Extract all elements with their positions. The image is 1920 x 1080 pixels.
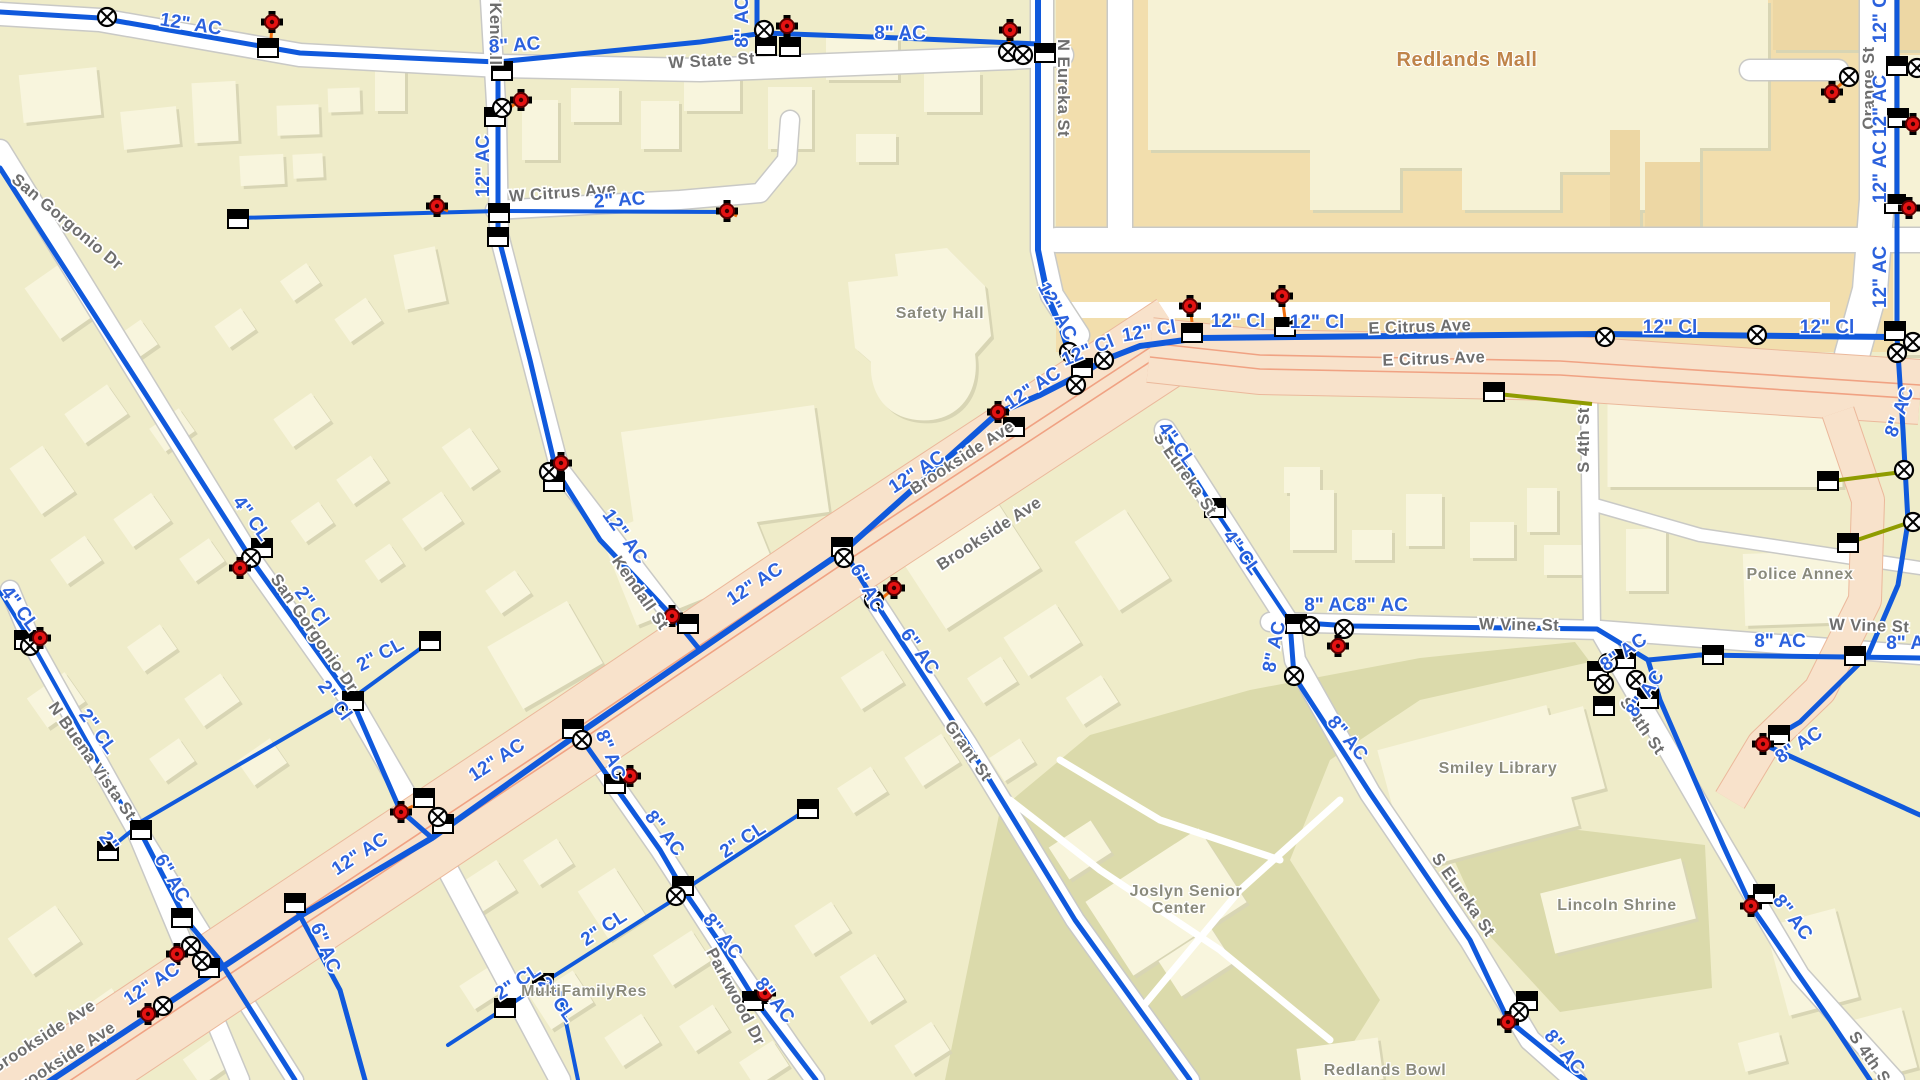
building-footprint — [1406, 494, 1442, 546]
valve-icon[interactable] — [835, 549, 853, 567]
valve-icon[interactable] — [1595, 675, 1613, 693]
building-footprint — [375, 69, 405, 111]
building-footprint — [1626, 529, 1666, 591]
building-footprint — [641, 101, 679, 149]
valve-icon[interactable] — [573, 731, 591, 749]
valve-icon[interactable] — [755, 21, 773, 39]
valve-icon[interactable] — [1888, 344, 1906, 362]
meter-icon[interactable] — [1818, 472, 1838, 490]
place-label: Smiley Library — [1439, 760, 1558, 777]
building-footprint — [19, 67, 102, 123]
meter-icon[interactable] — [414, 789, 434, 807]
pipe-size-label: 12" Cl — [1290, 312, 1344, 333]
place-label: Police Annex — [1746, 566, 1853, 583]
building-footprint — [120, 106, 180, 150]
valve-icon[interactable] — [1904, 333, 1920, 351]
valve-icon[interactable] — [1748, 326, 1766, 344]
pipe-size-label: 12" Cl — [1211, 311, 1265, 332]
meter-icon[interactable] — [1182, 324, 1202, 342]
valve-icon[interactable] — [193, 952, 211, 970]
gis-map-viewport[interactable]: W State StW State StW Citrus AveKendallK… — [0, 0, 1920, 1080]
meter-icon[interactable] — [420, 632, 440, 650]
pipe-size-label: 12" AC — [1870, 246, 1891, 308]
valve-icon[interactable] — [667, 887, 685, 905]
building-footprint — [1352, 530, 1392, 560]
meter-icon[interactable] — [1484, 383, 1504, 401]
building-footprint — [1470, 522, 1514, 558]
meter-icon[interactable] — [285, 894, 305, 912]
meter-icon[interactable] — [1887, 57, 1907, 75]
meter-icon[interactable] — [798, 800, 818, 818]
street-label: S 4th St — [1575, 407, 1593, 472]
street-label: E Citrus Ave — [1368, 316, 1471, 338]
pipe-size-label: 12" AC — [473, 135, 494, 197]
meter-icon[interactable] — [228, 210, 248, 228]
building-footprint — [191, 81, 238, 143]
meter-icon[interactable] — [172, 909, 192, 927]
valve-icon[interactable] — [1014, 46, 1032, 64]
major-road — [1150, 350, 1920, 392]
pipe-size-label: 12" Cl — [1870, 0, 1891, 43]
street-label: E Citrus Ave — [1382, 348, 1485, 370]
valve-icon[interactable] — [1904, 513, 1920, 531]
valve-icon[interactable] — [1895, 461, 1913, 479]
meter-icon[interactable] — [1703, 646, 1723, 664]
building-footprint — [276, 104, 319, 135]
building-footprint — [292, 153, 323, 179]
place-label: Joslyn Senior — [1130, 883, 1243, 900]
pipe-size-label: 12" AC — [1870, 141, 1891, 203]
meter-icon[interactable] — [780, 38, 800, 56]
place-label: Redlands Bowl — [1324, 1062, 1446, 1079]
meter-icon[interactable] — [1838, 534, 1858, 552]
street-label: W Vine St — [1479, 615, 1560, 634]
valve-icon[interactable] — [98, 8, 116, 26]
meter-icon[interactable] — [1885, 322, 1905, 340]
meter-icon[interactable] — [488, 228, 508, 246]
meter-icon[interactable] — [1594, 697, 1614, 715]
valve-icon[interactable] — [1301, 617, 1319, 635]
building-footprint — [522, 100, 558, 160]
pipe-size-label: 8" AC — [1886, 633, 1920, 654]
street-label: N Eureka St — [1054, 39, 1072, 137]
building-footprint — [239, 154, 285, 186]
pipe-size-label: 8" AC — [1754, 631, 1806, 652]
valve-icon[interactable] — [429, 808, 447, 826]
pipe-size-label: 8" AC — [874, 23, 926, 44]
valve-icon[interactable] — [1840, 68, 1858, 86]
valve-icon[interactable] — [1908, 59, 1920, 77]
valve-icon[interactable] — [1596, 328, 1614, 346]
meter-icon[interactable] — [1035, 44, 1055, 62]
valve-icon[interactable] — [493, 99, 511, 117]
meter-icon[interactable] — [258, 39, 278, 57]
pipe-size-label: 8" AC — [1356, 595, 1408, 616]
mall-label: Redlands Mall — [1397, 49, 1538, 71]
building-footprint — [924, 72, 980, 112]
pipe-size-label: 8" AC — [732, 0, 753, 48]
meter-icon[interactable] — [131, 821, 151, 839]
meter-icon[interactable] — [1845, 647, 1865, 665]
place-label: Lincoln Shrine — [1557, 897, 1677, 914]
pipe-size-label: 12" Cl — [1643, 317, 1697, 338]
building-footprint — [328, 87, 361, 112]
pipe-size-label: 2" AC — [593, 188, 646, 213]
pipe-size-label: 8" AC — [488, 33, 541, 58]
place-label: Center — [1152, 900, 1206, 917]
building-footprint — [571, 88, 619, 122]
building-footprint — [1290, 490, 1334, 550]
meter-icon[interactable] — [489, 204, 509, 222]
building-footprint — [1544, 545, 1584, 575]
valve-icon[interactable] — [1067, 376, 1085, 394]
pipe-size-label: 8" AC — [1304, 595, 1356, 616]
water-network-map-canvas[interactable]: W State StW State StW Citrus AveKendallK… — [0, 0, 1920, 1080]
place-label: Safety Hall — [896, 305, 984, 322]
building-footprint — [856, 134, 896, 162]
building-footprint — [1284, 467, 1320, 493]
valve-icon[interactable] — [1285, 667, 1303, 685]
pipe-size-label: 12" Cl — [1800, 317, 1854, 338]
place-label: MultiFamilyRes — [521, 983, 647, 1000]
building-footprint — [1527, 488, 1557, 532]
pipe-size-label: 12" AC — [1870, 75, 1891, 137]
